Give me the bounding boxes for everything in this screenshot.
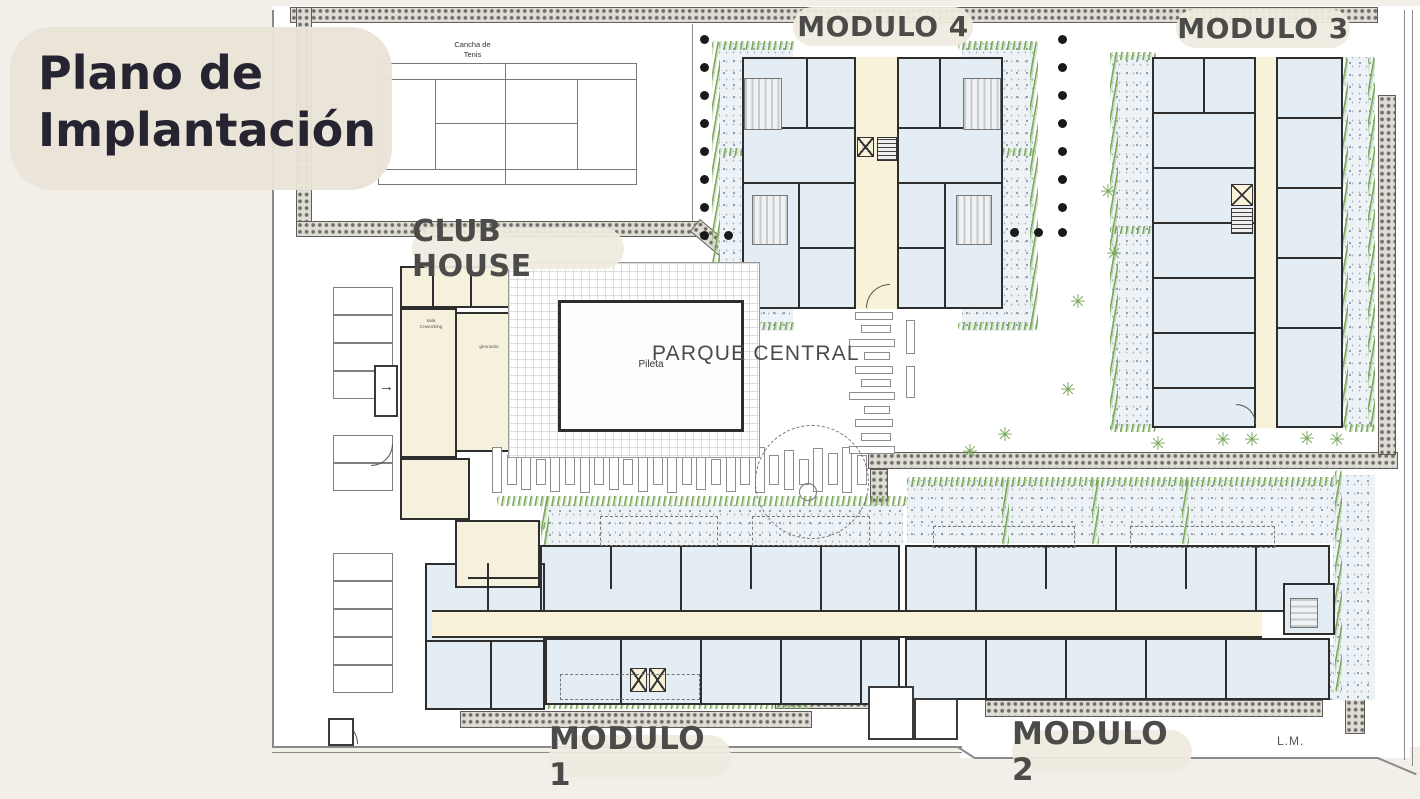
- wall-segment: [1115, 545, 1117, 611]
- corridor-modulo3: [1254, 57, 1278, 428]
- site-plan-canvas: ✳✳✳✳✳✳✳✳✳✳✳ Cancha de Tenis Pileta PARQU…: [0, 0, 1420, 799]
- label-modulo-1: MODULO 1: [549, 735, 731, 778]
- wall-segment: [1203, 57, 1205, 113]
- tree-trunk-circle: [799, 483, 817, 501]
- wall-segment: [985, 638, 987, 699]
- shrub-icon: ✳: [1100, 183, 1116, 202]
- terrace-stripes: [744, 78, 782, 130]
- wall-segment: [680, 545, 682, 611]
- entry-arrow-icon: →: [379, 378, 394, 395]
- wall-segment: [1277, 327, 1343, 329]
- tree-dot: [1058, 228, 1067, 237]
- stair-stripes: [1290, 598, 1318, 628]
- tree-dot: [700, 231, 709, 240]
- site-boundary-line: [1412, 10, 1413, 766]
- tree-dot: [1058, 147, 1067, 156]
- wall-segment: [1065, 638, 1067, 699]
- page-title-line1: Plano de: [38, 45, 368, 102]
- tennis-court-service-line: [435, 79, 436, 169]
- tree-dot: [700, 147, 709, 156]
- wall-segment: [898, 247, 945, 249]
- tree-canopy-circle: [755, 425, 869, 539]
- paver-slab: [861, 379, 891, 387]
- wall-segment: [1145, 638, 1147, 699]
- tennis-court-net-line: [505, 63, 506, 185]
- tennis-court: [378, 63, 637, 185]
- shrub-icon: ✳: [1106, 245, 1122, 264]
- parking-stall: [333, 609, 393, 637]
- wall-segment: [1225, 638, 1227, 699]
- paver-slab: [594, 455, 604, 485]
- boundary-lm-label: L.M.: [1277, 734, 1304, 748]
- paver-slab: [849, 392, 895, 400]
- wall-segment: [1277, 257, 1343, 259]
- paver-slab: [864, 352, 890, 360]
- paver-slab: [864, 406, 890, 414]
- garden-patch: [1112, 55, 1154, 428]
- paver-slab: [492, 447, 502, 493]
- room-label-gym: gimnasio: [462, 344, 516, 350]
- parking-stall: [333, 553, 393, 581]
- hedge-strip: [1345, 424, 1375, 432]
- shrub-icon: ✳: [962, 443, 978, 462]
- hedge-strip: [958, 41, 1036, 50]
- hedge-strip: [1110, 52, 1156, 60]
- wall-segment: [468, 577, 541, 579]
- cobble-path: [985, 700, 1323, 717]
- tree-dot: [700, 119, 709, 128]
- tree-dot: [700, 91, 709, 100]
- stair-box: [877, 137, 897, 161]
- shrub-icon: ✳: [1329, 431, 1345, 450]
- site-boundary-line: [692, 24, 693, 221]
- tennis-court-line: [378, 79, 637, 80]
- tree-dot: [1058, 119, 1067, 128]
- wall-segment: [490, 642, 492, 710]
- wall-segment: [487, 563, 489, 611]
- tree-dot: [1058, 203, 1067, 212]
- title-card: Plano de Implantación: [10, 27, 392, 190]
- wall-segment: [939, 57, 941, 129]
- wall-segment: [806, 57, 808, 129]
- parking-stall: [333, 581, 393, 609]
- label-modulo-4: MODULO 4: [793, 7, 973, 46]
- balcony-dashed-outline: [933, 526, 1075, 548]
- central-park-label: PARQUE CENTRAL: [652, 342, 860, 366]
- paver-slab: [536, 459, 546, 485]
- tennis-court-center-line: [435, 123, 577, 124]
- wall-segment: [1277, 117, 1343, 119]
- paver-slab: [861, 325, 891, 333]
- outbuilding: [868, 686, 914, 740]
- wall-segment: [425, 640, 545, 642]
- hedge-strip: [1030, 41, 1038, 330]
- wall-segment: [1185, 545, 1187, 589]
- wall-segment: [860, 638, 862, 704]
- wall-segment: [798, 247, 855, 249]
- hedge-strip: [958, 322, 1036, 330]
- balcony-dashed-outline: [560, 674, 700, 700]
- building-block: [905, 638, 1330, 700]
- parking-stall: [333, 315, 393, 343]
- parking-stall: [333, 463, 393, 491]
- shrub-icon: ✳: [1060, 381, 1076, 400]
- tree-dot: [700, 175, 709, 184]
- clubhouse-block: [400, 308, 457, 458]
- tree-dot: [1034, 228, 1043, 237]
- wall-segment: [750, 545, 752, 589]
- label-modulo-2: MODULO 2: [1012, 730, 1192, 773]
- tree-dot: [1058, 91, 1067, 100]
- room-label-coworking-line2: Coworking: [404, 324, 458, 330]
- paver-slab: [855, 312, 893, 320]
- tree-dot: [700, 203, 709, 212]
- wall-segment: [975, 545, 977, 611]
- hedge-strip: [719, 41, 795, 50]
- wall-segment: [944, 184, 946, 307]
- hedge-strip: [1368, 57, 1375, 427]
- tennis-court-label: Cancha de Tenis: [430, 40, 515, 60]
- wall-segment: [610, 545, 612, 589]
- paver-slab: [623, 459, 633, 485]
- paver-slab: [855, 366, 893, 374]
- hedge-strip: [907, 477, 1337, 486]
- page-title-line2: Implantación: [38, 102, 368, 159]
- shrub-icon: ✳: [1215, 431, 1231, 450]
- label-modulo-3: MODULO 3: [1176, 9, 1350, 48]
- paver-slab: [906, 366, 915, 398]
- terrace-stripes: [956, 195, 992, 245]
- wall-segment: [1045, 545, 1047, 589]
- parking-stall: [333, 287, 393, 315]
- paver-slab: [855, 419, 893, 427]
- room-label-coworking: sala Coworking: [404, 318, 458, 330]
- wall-segment: [1152, 332, 1255, 334]
- tennis-label-line2: Tenis: [430, 50, 515, 60]
- site-boundary-line: [1404, 10, 1405, 760]
- tree-dot: [1058, 63, 1067, 72]
- wall-segment: [1152, 167, 1255, 169]
- shrub-icon: ✳: [1299, 430, 1315, 449]
- tree-dot: [1058, 175, 1067, 184]
- hedge-strip: [1110, 424, 1156, 432]
- wall-segment: [1255, 545, 1257, 611]
- tree-dot: [1058, 35, 1067, 44]
- terrace-stripes: [963, 78, 1001, 130]
- tree-dot: [724, 231, 733, 240]
- corridor-modulo1-2: [432, 610, 1262, 638]
- wall-segment: [1277, 187, 1343, 189]
- wall-segment: [780, 638, 782, 704]
- shrub-icon: ✳: [1070, 293, 1086, 312]
- cobble-path: [1378, 95, 1396, 455]
- cobble-path: [868, 452, 1398, 469]
- tree-dot: [1010, 228, 1019, 237]
- wall-segment: [898, 182, 1003, 184]
- corridor-modulo4: [854, 57, 899, 309]
- elevator-box: [1231, 184, 1253, 206]
- clubhouse-block: [455, 312, 512, 452]
- building-block: [905, 545, 1330, 612]
- clubhouse-block: [400, 458, 470, 520]
- label-club-house: CLUB HOUSE: [412, 228, 624, 269]
- wall-segment: [820, 545, 822, 611]
- elevator-box: [857, 137, 874, 157]
- shrub-icon: ✳: [1150, 435, 1166, 454]
- paver-slab: [682, 455, 692, 485]
- site-boundary-line: [1377, 757, 1416, 775]
- wall-segment: [700, 638, 702, 704]
- hedge-strip: [1110, 226, 1156, 234]
- wall-segment: [798, 184, 800, 307]
- shrub-icon: ✳: [997, 426, 1013, 445]
- tennis-court-line: [378, 169, 637, 170]
- tree-dot: [700, 63, 709, 72]
- wall-segment: [1152, 387, 1255, 389]
- paver-slab: [711, 459, 721, 485]
- wall-segment: [1152, 277, 1255, 279]
- balcony-dashed-outline: [1130, 526, 1275, 548]
- tennis-court-service-line: [577, 79, 578, 169]
- balcony-dashed-outline: [600, 516, 718, 546]
- stair-box: [1231, 208, 1253, 234]
- terrace-stripes: [752, 195, 788, 245]
- hedge-strip: [1110, 52, 1118, 430]
- shrub-icon: ✳: [1244, 431, 1260, 450]
- tree-dot: [700, 35, 709, 44]
- parking-stall: [333, 637, 393, 665]
- hedge-strip: [1092, 479, 1099, 545]
- paver-slab: [861, 433, 891, 441]
- outbuilding: [914, 698, 958, 740]
- paver-slab: [906, 320, 915, 354]
- tennis-label-line1: Cancha de: [430, 40, 515, 50]
- parking-stall: [333, 665, 393, 693]
- hedge-strip: [1335, 470, 1342, 692]
- paver-slab: [507, 455, 517, 485]
- outbuilding: [328, 718, 354, 746]
